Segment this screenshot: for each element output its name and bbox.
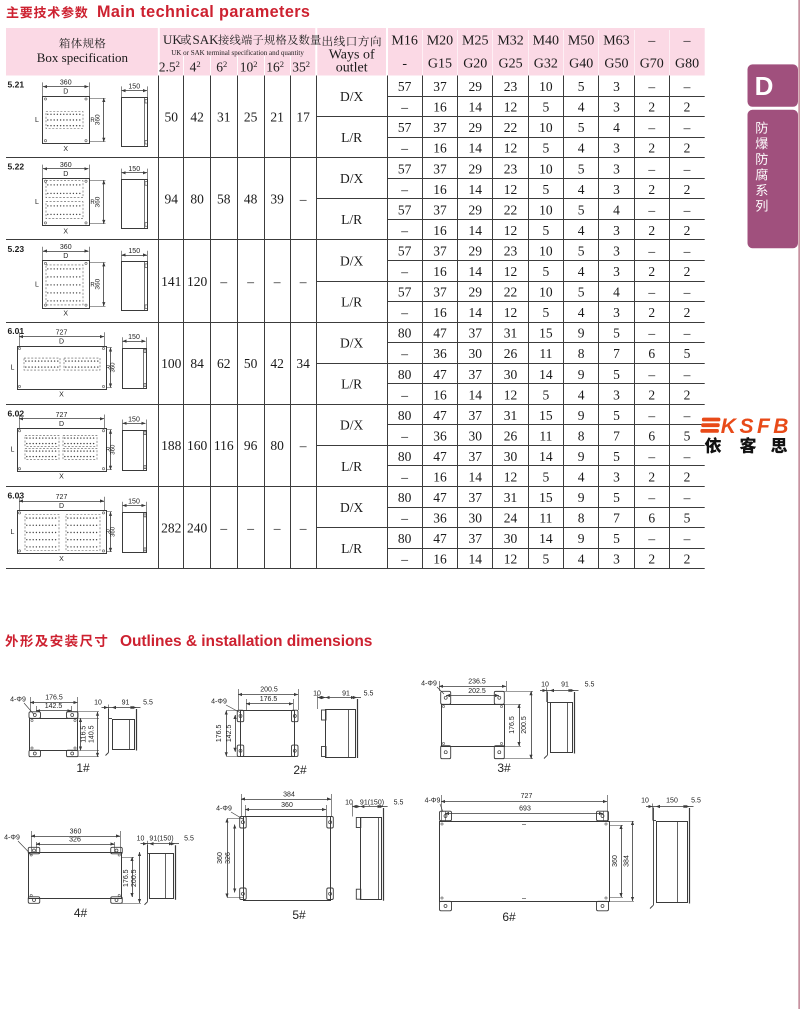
svg-text:–: –	[683, 490, 691, 505]
svg-text:M40: M40	[533, 33, 559, 48]
svg-text:3: 3	[613, 79, 620, 94]
svg-text:94: 94	[165, 192, 179, 207]
svg-text:3: 3	[613, 223, 620, 238]
svg-text:L: L	[11, 447, 15, 454]
svg-text:37: 37	[433, 161, 447, 176]
svg-text:240: 240	[187, 520, 208, 535]
svg-text:5: 5	[542, 552, 549, 567]
svg-text:3: 3	[613, 182, 620, 197]
svg-text:–: –	[400, 428, 408, 443]
svg-text:22: 22	[504, 120, 518, 135]
svg-text:4-Φ9: 4-Φ9	[10, 697, 26, 704]
svg-text:9: 9	[578, 490, 585, 505]
svg-text:360: 360	[95, 278, 102, 289]
svg-text:31: 31	[217, 109, 231, 124]
svg-text:–: –	[647, 531, 655, 546]
svg-text:10: 10	[345, 800, 353, 807]
svg-text:–: –	[273, 520, 281, 535]
svg-text:7: 7	[613, 346, 620, 361]
svg-text:2: 2	[684, 182, 691, 197]
svg-text:–: –	[400, 100, 408, 115]
svg-text:360: 360	[60, 162, 72, 169]
svg-text:36: 36	[433, 511, 447, 526]
svg-text:D: D	[59, 339, 64, 346]
svg-text:2: 2	[648, 387, 655, 402]
svg-text:16: 16	[433, 100, 447, 115]
svg-text:5: 5	[578, 243, 585, 258]
svg-text:16: 16	[433, 223, 447, 238]
svg-text:37: 37	[433, 243, 447, 258]
svg-text:–: –	[299, 520, 307, 535]
svg-text:176.5: 176.5	[216, 725, 223, 743]
svg-text:150: 150	[128, 416, 140, 423]
svg-text:D: D	[59, 503, 64, 510]
svg-text:5.22: 5.22	[8, 162, 25, 172]
svg-text:14: 14	[539, 367, 553, 382]
svg-text:10: 10	[539, 161, 553, 176]
svg-text:2: 2	[684, 141, 691, 156]
svg-text:3: 3	[613, 264, 620, 279]
svg-text:M25: M25	[462, 33, 488, 48]
svg-text:10: 10	[539, 79, 553, 94]
svg-text:5: 5	[542, 100, 549, 115]
svg-text:–: –	[647, 33, 656, 48]
svg-text:3: 3	[613, 387, 620, 402]
svg-text:5: 5	[613, 408, 620, 423]
svg-text:–: –	[683, 202, 691, 217]
svg-text:L/R: L/R	[341, 294, 362, 309]
svg-text:47: 47	[433, 531, 447, 546]
svg-text:360: 360	[281, 802, 293, 809]
svg-text:14: 14	[469, 387, 483, 402]
svg-text:57: 57	[398, 79, 412, 94]
svg-text:24: 24	[504, 511, 518, 526]
svg-text:5: 5	[684, 428, 691, 443]
svg-text:16: 16	[433, 470, 447, 485]
svg-text:57: 57	[398, 120, 412, 135]
svg-text:9: 9	[578, 367, 585, 382]
svg-text:D: D	[63, 171, 68, 178]
svg-text:5: 5	[578, 79, 585, 94]
svg-text:57: 57	[398, 285, 412, 300]
svg-text:–: –	[647, 326, 655, 341]
svg-text:10: 10	[94, 700, 102, 707]
svg-text:–: –	[400, 223, 408, 238]
svg-text:–: –	[647, 408, 655, 423]
svg-text:12: 12	[504, 305, 518, 320]
svg-text:16: 16	[433, 141, 447, 156]
svg-text:6: 6	[648, 511, 655, 526]
svg-text:22: 22	[504, 285, 518, 300]
svg-text:X: X	[59, 474, 64, 481]
svg-text:14: 14	[469, 223, 483, 238]
svg-text:G25: G25	[498, 56, 522, 71]
svg-text:5: 5	[578, 120, 585, 135]
svg-text:–: –	[246, 520, 254, 535]
svg-text:5: 5	[578, 285, 585, 300]
svg-text:9: 9	[578, 408, 585, 423]
svg-text:2: 2	[684, 305, 691, 320]
svg-text:-: -	[402, 56, 407, 71]
svg-text:G15: G15	[428, 56, 452, 71]
svg-text:150: 150	[666, 798, 678, 805]
svg-text:176.5: 176.5	[123, 869, 130, 887]
svg-text:5: 5	[684, 511, 691, 526]
svg-text:4-Φ9: 4-Φ9	[4, 835, 20, 842]
svg-text:360: 360	[111, 526, 117, 537]
svg-text:80: 80	[270, 438, 284, 453]
svg-text:–: –	[683, 79, 691, 94]
svg-text:M50: M50	[568, 33, 594, 48]
svg-text:91(150): 91(150)	[149, 836, 173, 843]
svg-text:4: 4	[578, 182, 585, 197]
svg-text:–: –	[400, 387, 408, 402]
svg-text:47: 47	[433, 367, 447, 382]
svg-text:–: –	[683, 120, 691, 135]
svg-text:–: –	[683, 449, 691, 464]
svg-text:727: 727	[56, 494, 68, 501]
svg-text:M32: M32	[497, 33, 523, 48]
svg-text:360: 360	[95, 114, 102, 125]
svg-text:4-Φ9: 4-Φ9	[421, 681, 437, 688]
svg-text:4: 4	[578, 552, 585, 567]
svg-text:–: –	[400, 264, 408, 279]
svg-text:15: 15	[539, 408, 553, 423]
svg-text:16: 16	[433, 264, 447, 279]
svg-text:2: 2	[648, 100, 655, 115]
svg-text:5.5: 5.5	[691, 798, 701, 805]
svg-text:120: 120	[187, 274, 208, 289]
svg-text:4-Φ9: 4-Φ9	[216, 806, 232, 813]
svg-text:47: 47	[433, 408, 447, 423]
svg-text:4#: 4#	[74, 906, 88, 920]
svg-text:50: 50	[244, 356, 258, 371]
svg-text:11: 11	[539, 346, 552, 361]
svg-text:–: –	[683, 243, 691, 258]
svg-text:12: 12	[504, 182, 518, 197]
svg-text:–: –	[400, 182, 408, 197]
svg-text:14: 14	[469, 552, 483, 567]
svg-text:150: 150	[128, 166, 140, 173]
svg-text:188: 188	[161, 438, 182, 453]
svg-text:4-Φ9: 4-Φ9	[425, 798, 441, 805]
svg-text:–: –	[683, 367, 691, 382]
svg-text:2: 2	[648, 305, 655, 320]
svg-text:80: 80	[398, 490, 412, 505]
svg-text:L: L	[35, 117, 39, 124]
svg-text:23: 23	[504, 243, 518, 258]
svg-text:5.5: 5.5	[184, 836, 194, 843]
svg-text:2: 2	[684, 100, 691, 115]
svg-text:282: 282	[161, 520, 181, 535]
svg-text:–: –	[647, 449, 655, 464]
svg-text:6#: 6#	[502, 910, 516, 924]
svg-text:2: 2	[684, 264, 691, 279]
svg-text:47: 47	[433, 326, 447, 341]
svg-text:D/X: D/X	[340, 500, 364, 515]
svg-text:–: –	[400, 552, 408, 567]
svg-text:16: 16	[433, 387, 447, 402]
svg-text:50: 50	[165, 109, 179, 124]
svg-text:14: 14	[539, 449, 553, 464]
svg-text:4: 4	[613, 285, 620, 300]
svg-text:11: 11	[539, 428, 552, 443]
svg-text:5: 5	[684, 346, 691, 361]
svg-text:80: 80	[398, 408, 412, 423]
svg-text:47: 47	[433, 490, 447, 505]
svg-text:30: 30	[469, 511, 483, 526]
svg-text:14: 14	[469, 305, 483, 320]
svg-text:KSFB: KSFB	[721, 415, 792, 438]
svg-text:4: 4	[578, 141, 585, 156]
svg-text:150: 150	[128, 499, 140, 506]
svg-text:142.5: 142.5	[226, 725, 233, 743]
svg-text:58: 58	[217, 192, 231, 207]
svg-text:14: 14	[469, 264, 483, 279]
svg-text:D: D	[59, 421, 64, 428]
svg-text:57: 57	[398, 161, 412, 176]
svg-text:–: –	[647, 243, 655, 258]
svg-text:G40: G40	[569, 56, 593, 71]
svg-text:9: 9	[578, 326, 585, 341]
svg-text:31: 31	[504, 326, 518, 341]
svg-text:7: 7	[613, 511, 620, 526]
svg-text:16: 16	[433, 182, 447, 197]
svg-text:141: 141	[161, 274, 181, 289]
svg-text:L: L	[11, 529, 15, 536]
svg-text:5.23: 5.23	[8, 244, 25, 254]
svg-text:D/X: D/X	[340, 418, 364, 433]
svg-text:–: –	[647, 202, 655, 217]
svg-text:14: 14	[469, 470, 483, 485]
svg-text:30: 30	[469, 428, 483, 443]
svg-text:2: 2	[648, 552, 655, 567]
svg-text:727: 727	[56, 412, 68, 419]
svg-text:–: –	[683, 408, 691, 423]
svg-text:23: 23	[504, 79, 518, 94]
svg-text:5: 5	[542, 223, 549, 238]
svg-text:2: 2	[684, 223, 691, 238]
svg-text:8: 8	[578, 346, 585, 361]
svg-text:2#: 2#	[293, 763, 307, 777]
svg-text:–: –	[647, 490, 655, 505]
svg-text:2: 2	[684, 470, 691, 485]
svg-text:36: 36	[433, 428, 447, 443]
svg-text:15: 15	[539, 490, 553, 505]
svg-text:1#: 1#	[76, 761, 90, 775]
svg-text:80: 80	[398, 326, 412, 341]
svg-text:34: 34	[296, 356, 310, 371]
svg-text:9: 9	[578, 449, 585, 464]
svg-text:L/R: L/R	[341, 459, 362, 474]
svg-text:14: 14	[469, 141, 483, 156]
svg-text:M63: M63	[603, 33, 629, 48]
svg-text:–: –	[299, 274, 307, 289]
svg-text:26: 26	[504, 346, 518, 361]
svg-text:L: L	[35, 199, 39, 206]
svg-text:176.5: 176.5	[260, 696, 278, 703]
svg-text:26: 26	[504, 428, 518, 443]
svg-text:–: –	[647, 79, 655, 94]
svg-text:693: 693	[519, 806, 531, 813]
svg-text:Main technical parameters: Main technical parameters	[97, 3, 310, 21]
svg-text:12: 12	[504, 387, 518, 402]
svg-text:–: –	[683, 285, 691, 300]
svg-text:5.5: 5.5	[585, 682, 595, 689]
svg-text:30: 30	[469, 346, 483, 361]
svg-text:5.5: 5.5	[394, 800, 404, 807]
svg-text:2: 2	[684, 552, 691, 567]
svg-text:5: 5	[542, 182, 549, 197]
svg-text:17: 17	[296, 109, 310, 124]
svg-text:37: 37	[469, 490, 483, 505]
svg-text:X: X	[59, 556, 64, 563]
svg-text:100: 100	[161, 356, 182, 371]
svg-text:202.5: 202.5	[468, 688, 486, 695]
svg-text:outlet: outlet	[336, 61, 368, 76]
svg-text:326: 326	[225, 852, 232, 864]
svg-text:360: 360	[217, 852, 224, 864]
svg-text:Box specification: Box specification	[37, 50, 129, 65]
svg-text:5: 5	[613, 326, 620, 341]
svg-text:30: 30	[504, 449, 518, 464]
svg-text:D/X: D/X	[340, 89, 364, 104]
svg-text:D: D	[63, 253, 68, 260]
svg-text:D/X: D/X	[340, 335, 364, 350]
svg-text:Outlines & installation dimens: Outlines & installation dimensions	[120, 633, 372, 650]
svg-text:9: 9	[578, 531, 585, 546]
svg-text:15: 15	[539, 326, 553, 341]
svg-text:80: 80	[190, 192, 204, 207]
svg-text:–: –	[683, 33, 692, 48]
svg-text:384: 384	[624, 855, 631, 867]
svg-text:29: 29	[469, 161, 483, 176]
svg-text:4: 4	[578, 470, 585, 485]
svg-text:150: 150	[128, 248, 140, 255]
svg-text:200.5: 200.5	[131, 869, 138, 887]
svg-text:4: 4	[578, 100, 585, 115]
svg-text:–: –	[400, 305, 408, 320]
svg-text:29: 29	[469, 120, 483, 135]
svg-text:10: 10	[313, 691, 321, 698]
svg-text:4: 4	[578, 305, 585, 320]
svg-text:6.02: 6.02	[8, 408, 25, 418]
svg-text:30: 30	[504, 531, 518, 546]
svg-text:5: 5	[542, 387, 549, 402]
svg-text:8: 8	[578, 428, 585, 443]
svg-text:22: 22	[504, 202, 518, 217]
svg-text:3: 3	[613, 100, 620, 115]
svg-text:21: 21	[270, 109, 284, 124]
svg-text:–: –	[683, 531, 691, 546]
svg-text:37: 37	[469, 367, 483, 382]
svg-text:384: 384	[283, 792, 295, 799]
svg-text:5: 5	[613, 531, 620, 546]
svg-text:2: 2	[648, 223, 655, 238]
svg-text:5: 5	[578, 161, 585, 176]
svg-text:37: 37	[469, 449, 483, 464]
svg-text:UK: UK	[163, 32, 182, 47]
svg-text:42: 42	[270, 356, 284, 371]
svg-text:16: 16	[433, 305, 447, 320]
svg-text:12: 12	[504, 264, 518, 279]
svg-text:62: 62	[217, 356, 231, 371]
svg-text:80: 80	[398, 531, 412, 546]
svg-text:–: –	[647, 120, 655, 135]
svg-text:360: 360	[60, 244, 72, 251]
svg-text:25: 25	[244, 109, 258, 124]
svg-text:360: 360	[60, 80, 72, 87]
svg-text:36: 36	[433, 346, 447, 361]
svg-text:37: 37	[433, 285, 447, 300]
svg-text:–: –	[246, 274, 254, 289]
svg-text:–: –	[273, 274, 281, 289]
svg-text:–: –	[219, 274, 227, 289]
svg-text:X: X	[63, 228, 68, 235]
svg-text:–: –	[400, 470, 408, 485]
svg-text:G70: G70	[640, 56, 664, 71]
svg-text:–: –	[683, 326, 691, 341]
svg-text:160: 160	[187, 438, 208, 453]
svg-text:2: 2	[648, 182, 655, 197]
svg-text:11: 11	[539, 511, 552, 526]
svg-text:4: 4	[613, 202, 620, 217]
svg-text:96: 96	[244, 438, 258, 453]
svg-text:200.5: 200.5	[521, 716, 528, 734]
svg-text:5: 5	[542, 305, 549, 320]
svg-text:X: X	[63, 311, 68, 318]
svg-text:29: 29	[469, 202, 483, 217]
svg-text:150: 150	[128, 84, 140, 91]
svg-text:D: D	[755, 71, 774, 101]
svg-text:6.01: 6.01	[8, 326, 25, 336]
svg-text:116: 116	[214, 438, 234, 453]
svg-text:5#: 5#	[292, 908, 306, 922]
svg-text:5: 5	[578, 202, 585, 217]
svg-text:L/R: L/R	[341, 130, 362, 145]
svg-text:42: 42	[190, 109, 204, 124]
svg-text:2: 2	[648, 264, 655, 279]
svg-text:360: 360	[612, 855, 619, 867]
svg-text:116.5: 116.5	[81, 726, 88, 743]
svg-text:150: 150	[128, 334, 140, 341]
svg-text:2: 2	[648, 141, 655, 156]
svg-text:X: X	[63, 146, 68, 153]
svg-text:80: 80	[398, 449, 412, 464]
svg-text:3: 3	[613, 552, 620, 567]
svg-text:91: 91	[342, 691, 350, 698]
svg-text:M16: M16	[391, 33, 417, 48]
svg-text:D/X: D/X	[340, 171, 364, 186]
svg-text:D/X: D/X	[340, 253, 364, 268]
svg-text:39: 39	[270, 192, 284, 207]
svg-text:–: –	[647, 161, 655, 176]
svg-text:12: 12	[504, 141, 518, 156]
svg-text:236.5: 236.5	[468, 679, 486, 686]
svg-text:12: 12	[504, 470, 518, 485]
svg-text:3: 3	[613, 305, 620, 320]
svg-text:SAK: SAK	[193, 32, 220, 47]
svg-text:5: 5	[542, 264, 549, 279]
svg-text:14: 14	[539, 531, 553, 546]
svg-text:91: 91	[122, 700, 130, 707]
svg-text:L/R: L/R	[341, 212, 362, 227]
svg-text:–: –	[299, 438, 307, 453]
svg-text:3: 3	[613, 470, 620, 485]
svg-text:12: 12	[504, 100, 518, 115]
svg-text:12: 12	[504, 223, 518, 238]
svg-text:37: 37	[433, 202, 447, 217]
